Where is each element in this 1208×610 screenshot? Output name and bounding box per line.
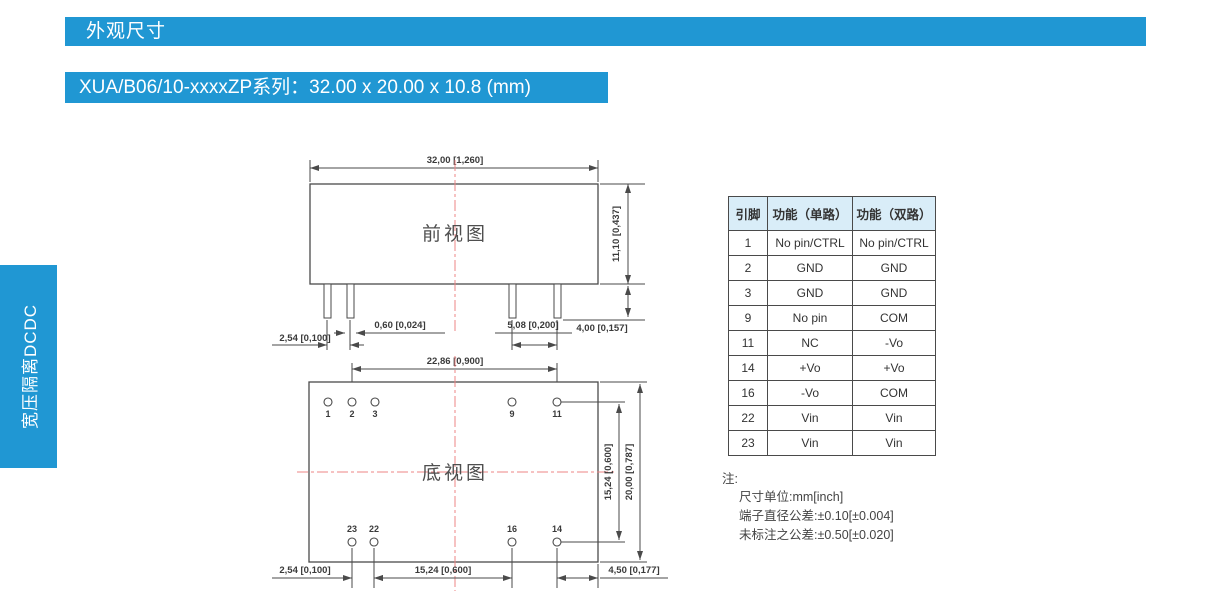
- table-cell: GND: [768, 256, 853, 281]
- table-cell: COM: [853, 381, 936, 406]
- table-header-pin: 引脚: [729, 197, 768, 231]
- table-cell: 9: [729, 306, 768, 331]
- pin-function-table: 引脚 功能（单路） 功能（双路） 1 No pin/CTRL No pin/CT…: [728, 196, 935, 456]
- table-cell: Vin: [853, 431, 936, 456]
- table-cell: GND: [853, 281, 936, 306]
- pin-number: 3: [372, 409, 377, 419]
- table-header-row: 引脚 功能（单路） 功能（双路）: [729, 197, 936, 231]
- table-cell: 3: [729, 281, 768, 306]
- table-cell: 2: [729, 256, 768, 281]
- table-cell: No pin/CTRL: [768, 231, 853, 256]
- pin-number: 1: [325, 409, 330, 419]
- table-cell: +Vo: [768, 356, 853, 381]
- table-cell: COM: [853, 306, 936, 331]
- front-view-drawing: 32,00 [1,260] 前视图 11,10 [0,437] 4,00 [0,…: [272, 155, 645, 350]
- table-cell: GND: [853, 256, 936, 281]
- table-row: 11 NC -Vo: [729, 331, 936, 356]
- table-cell: GND: [768, 281, 853, 306]
- table-cell: NC: [768, 331, 853, 356]
- front-view-label: 前视图: [422, 223, 488, 245]
- table-cell: Vin: [768, 406, 853, 431]
- pin-number: 2: [349, 409, 354, 419]
- table-row: 14 +Vo +Vo: [729, 356, 936, 381]
- table-cell: Vin: [853, 406, 936, 431]
- dim-label-row-span: 15,24 [0,600]: [603, 444, 614, 501]
- dim-label-bottom-pitch-left: 2,54 [0,100]: [279, 565, 330, 576]
- dim-label-bottom-height: 20,00 [0,787]: [624, 444, 635, 501]
- dim-label-front-height: 11,10 [0,437]: [611, 206, 622, 262]
- sidebar-category-tab: 宽压隔离DCDC: [0, 265, 57, 468]
- dim-label-pin-width: 0,60 [0,024]: [374, 320, 425, 331]
- series-dimensions-subtitle: XUA/B06/10-xxxxZP系列：32.00 x 20.00 x 10.8…: [65, 72, 608, 103]
- note-line: 未标注之公差:±0.50[±0.020]: [739, 526, 972, 545]
- table-cell: 1: [729, 231, 768, 256]
- table-row: 23 Vin Vin: [729, 431, 936, 456]
- pin-number: 23: [347, 524, 357, 534]
- table-row: 9 No pin COM: [729, 306, 936, 331]
- pin-number: 22: [369, 524, 379, 534]
- table-row: 1 No pin/CTRL No pin/CTRL: [729, 231, 936, 256]
- pin-number: 14: [552, 524, 562, 534]
- bottom-view-drawing: 22,86 [0,900] 底视图 1 2 3 9 11 23 22 16 14…: [272, 356, 668, 591]
- table-cell: +Vo: [853, 356, 936, 381]
- table-cell: 11: [729, 331, 768, 356]
- table-header-func-single: 功能（单路）: [768, 197, 853, 231]
- table-row: 22 Vin Vin: [729, 406, 936, 431]
- table-cell: -Vo: [768, 381, 853, 406]
- table-cell: 22: [729, 406, 768, 431]
- pin-number: 11: [552, 409, 562, 419]
- pin-number: 9: [509, 409, 514, 419]
- note-line: 尺寸单位:mm[inch]: [739, 488, 972, 507]
- table-cell: 23: [729, 431, 768, 456]
- table-row: 2 GND GND: [729, 256, 936, 281]
- bottom-view-label: 底视图: [422, 462, 488, 484]
- notes-block: 注: 尺寸单位:mm[inch] 端子直径公差:±0.10[±0.004] 未标…: [722, 468, 972, 545]
- note-line: 端子直径公差:±0.10[±0.004]: [739, 507, 972, 526]
- dim-label-front-pitch-right: 5,08 [0,200]: [507, 320, 558, 331]
- table-cell: 16: [729, 381, 768, 406]
- table-cell: No pin/CTRL: [853, 231, 936, 256]
- dim-label-front-pitch-left: 2,54 [0,100]: [279, 333, 330, 344]
- dim-label-pin-length: 4,00 [0,157]: [576, 323, 627, 334]
- table-row: 16 -Vo COM: [729, 381, 936, 406]
- sidebar-category-label: 宽压隔离DCDC: [16, 304, 41, 429]
- dim-label-edge-right: 4,50 [0,177]: [608, 565, 659, 576]
- table-cell: Vin: [768, 431, 853, 456]
- table-row: 3 GND GND: [729, 281, 936, 306]
- page-title: 外观尺寸: [65, 17, 1146, 46]
- table-cell: -Vo: [853, 331, 936, 356]
- notes-title: 注:: [722, 468, 972, 487]
- pin-number: 16: [507, 524, 517, 534]
- table-header-func-dual: 功能（双路）: [853, 197, 936, 231]
- table-cell: 14: [729, 356, 768, 381]
- dim-label-bottom-span: 15,24 [0,600]: [415, 565, 472, 576]
- table-cell: No pin: [768, 306, 853, 331]
